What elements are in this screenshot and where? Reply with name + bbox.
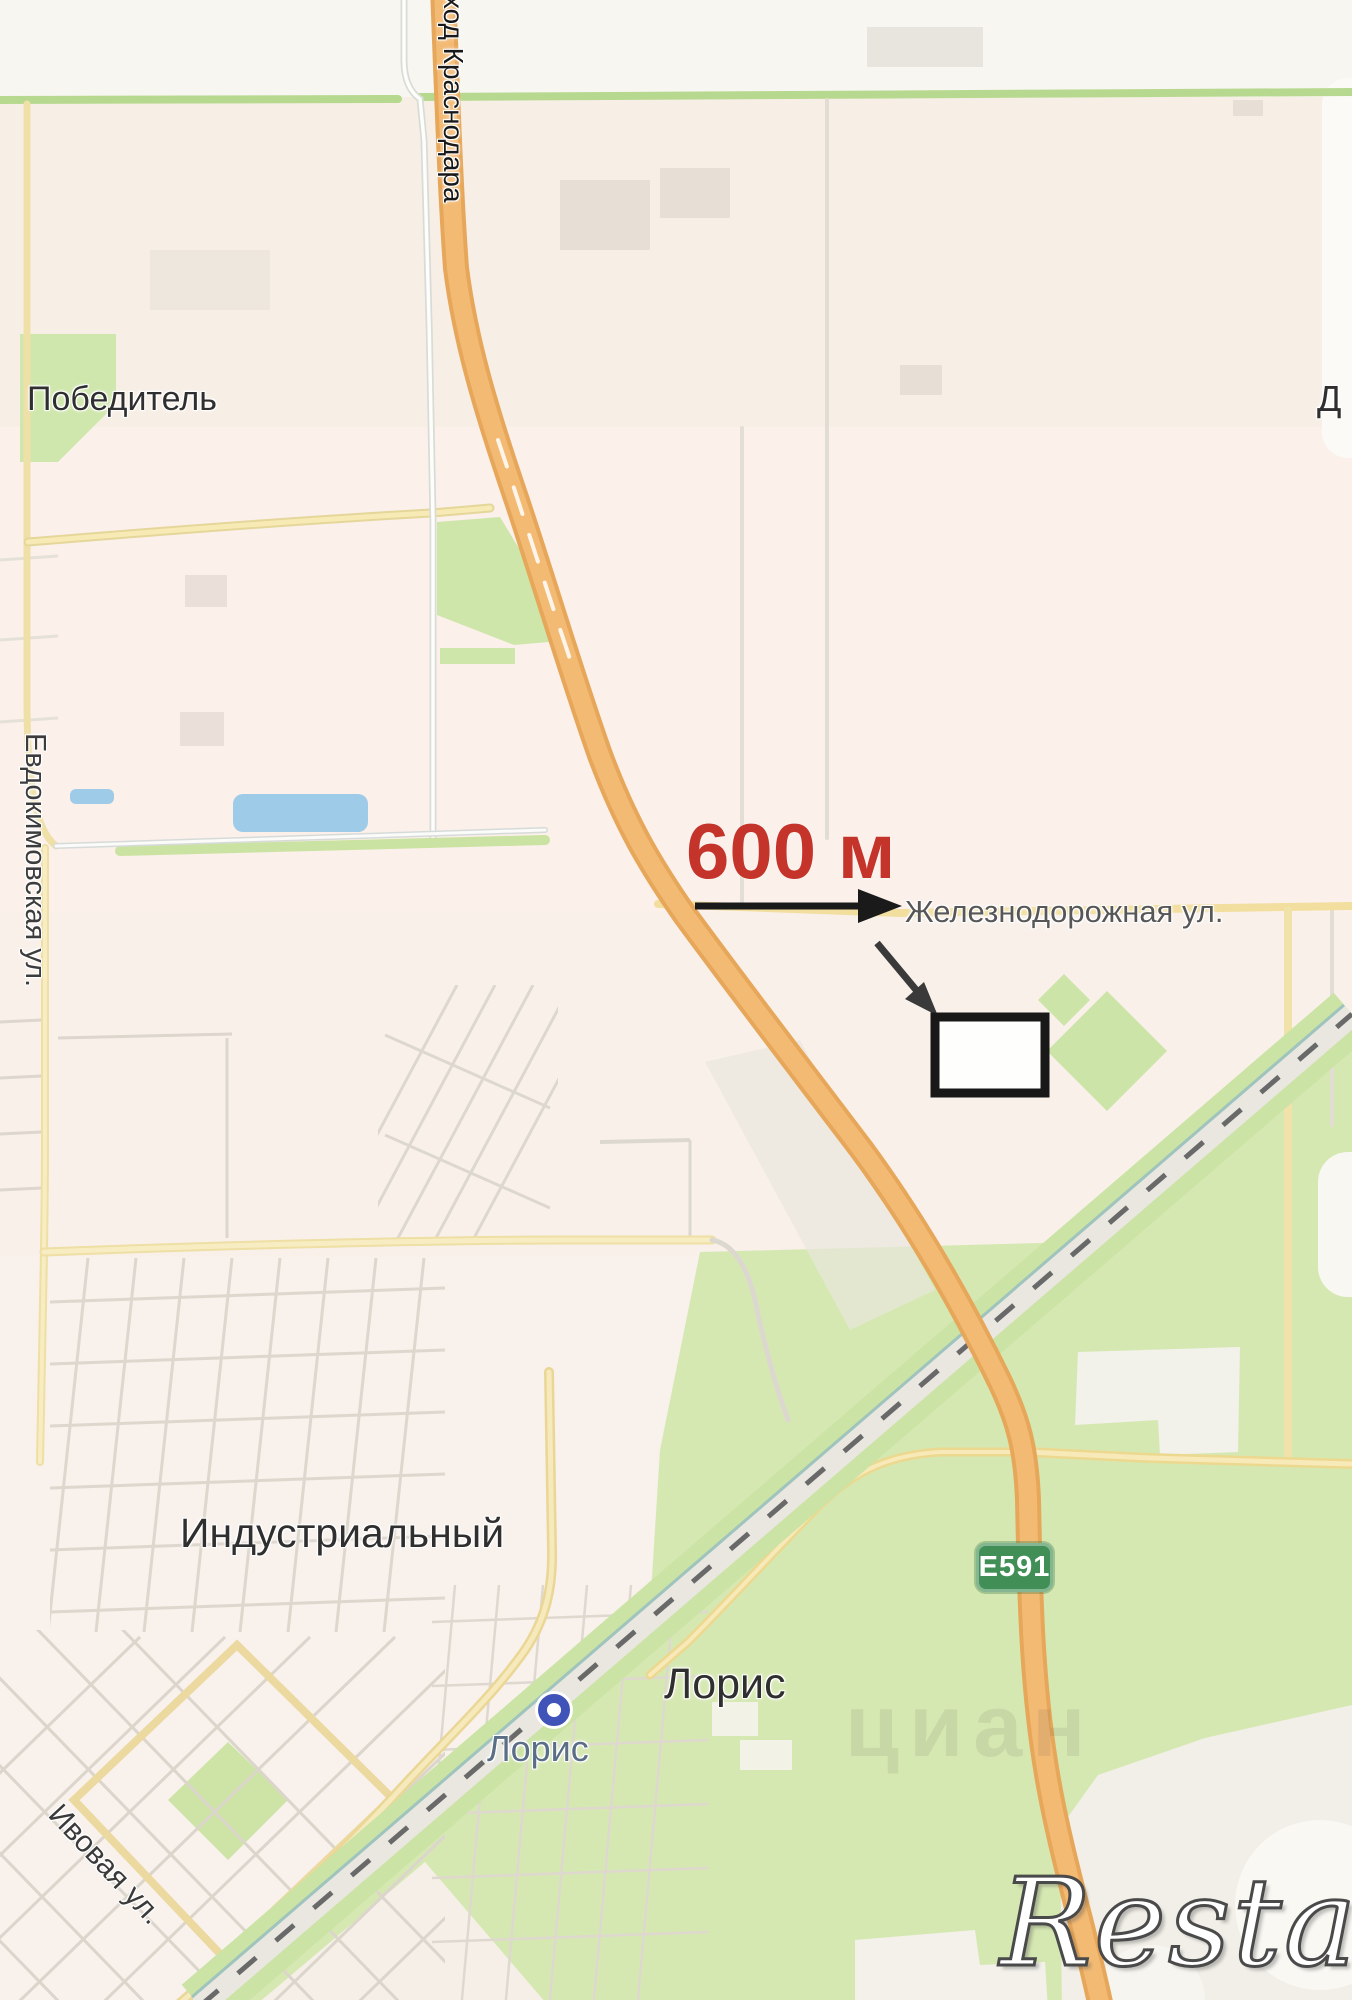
- route-badge-e591: E591: [976, 1543, 1053, 1592]
- street-label-obvod-krasnodara: Обход Краснодара: [437, 0, 469, 203]
- distance-annotation: 600 м: [686, 812, 896, 890]
- station-label-loris: Лорис: [487, 1728, 589, 1770]
- place-label-cutoff-d: Д: [1317, 378, 1341, 420]
- place-label-industrialny: Индустриальный: [180, 1510, 504, 1557]
- map-canvas[interactable]: Победитель Обход Краснодара Евдокимовска…: [0, 0, 1352, 2000]
- cian-watermark: циан: [845, 1675, 1095, 1777]
- restate-watermark: Restate: [1000, 1852, 1352, 1994]
- street-label-zheleznodorozhnaya: Железнодорожная ул.: [905, 894, 1223, 930]
- loris-station-icon[interactable]: [538, 1694, 570, 1726]
- place-label-pobeditel: Победитель: [27, 380, 217, 419]
- place-label-loris: Лорис: [664, 1660, 786, 1709]
- street-label-evdokimovskaya: Евдокимовская ул.: [18, 733, 51, 987]
- plot-rectangle: [935, 1017, 1045, 1093]
